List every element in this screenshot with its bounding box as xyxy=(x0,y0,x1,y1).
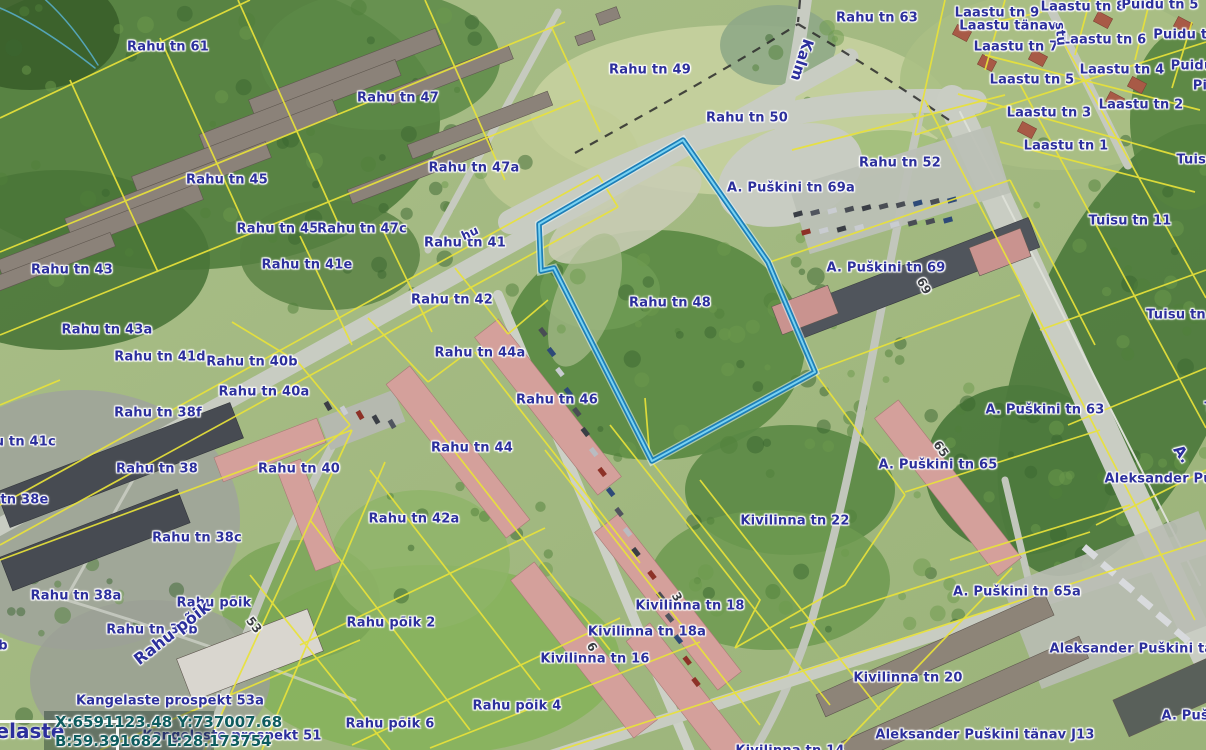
cadastral-layer xyxy=(0,0,1206,750)
map-viewport[interactable]: Rahu tn 61Rahu tn 47Rahu tn 49Rahu tn 63… xyxy=(0,0,1206,750)
cadastral-lines xyxy=(0,0,1206,750)
highlighted-parcel-outline[interactable] xyxy=(539,140,815,461)
